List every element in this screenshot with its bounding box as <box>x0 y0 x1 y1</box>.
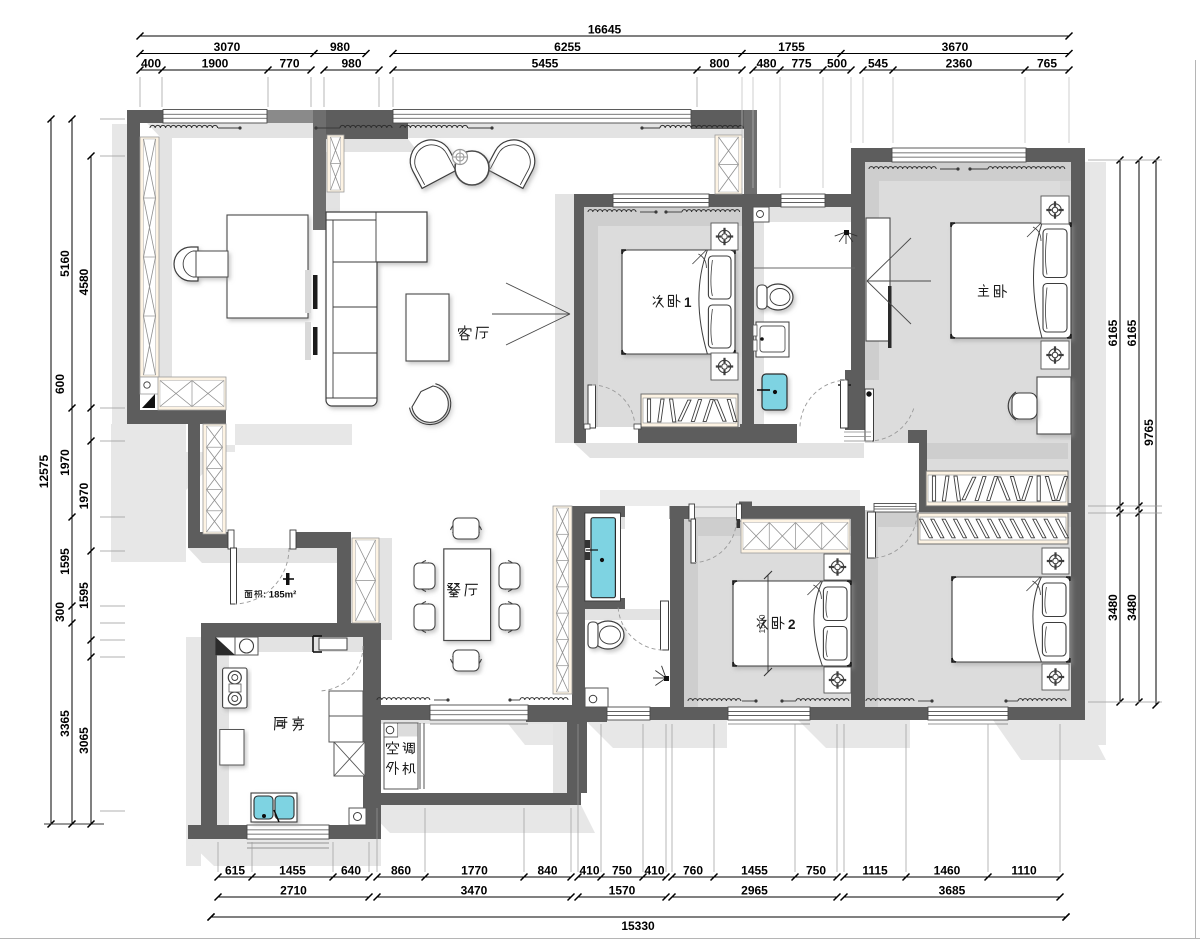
svg-text:1570: 1570 <box>609 884 636 898</box>
svg-text:480: 480 <box>756 57 776 71</box>
svg-text:3670: 3670 <box>942 40 969 54</box>
svg-text:12575: 12575 <box>37 454 51 488</box>
svg-text:545: 545 <box>868 57 888 71</box>
svg-text:1115: 1115 <box>862 864 888 878</box>
svg-text:3065: 3065 <box>77 727 91 754</box>
svg-text:1755: 1755 <box>778 40 805 54</box>
svg-text:980: 980 <box>341 57 361 71</box>
svg-text:770: 770 <box>279 57 299 71</box>
svg-text:2965: 2965 <box>741 884 768 898</box>
svg-text:1500: 1500 <box>757 614 767 633</box>
svg-text:9765: 9765 <box>1142 419 1156 446</box>
svg-text:3480: 3480 <box>1106 594 1120 621</box>
svg-text:775: 775 <box>791 57 811 71</box>
svg-text:760: 760 <box>683 864 703 878</box>
svg-text:6255: 6255 <box>554 40 581 54</box>
svg-text:1110: 1110 <box>1011 864 1037 878</box>
svg-text:15330: 15330 <box>621 919 655 933</box>
svg-text:3365: 3365 <box>58 710 72 737</box>
svg-text:640: 640 <box>341 864 361 878</box>
svg-text:3070: 3070 <box>214 40 241 54</box>
svg-text:3480: 3480 <box>1125 594 1139 621</box>
svg-text:860: 860 <box>391 864 411 878</box>
svg-text:3685: 3685 <box>939 884 966 898</box>
svg-text:3470: 3470 <box>461 884 488 898</box>
svg-text:750: 750 <box>806 864 826 878</box>
svg-text:1970: 1970 <box>58 449 72 476</box>
svg-text:2: 2 <box>788 617 796 632</box>
svg-text:1: 1 <box>684 295 692 310</box>
svg-text:1595: 1595 <box>58 548 72 575</box>
svg-text:1900: 1900 <box>202 57 229 71</box>
svg-text:765: 765 <box>1037 57 1057 71</box>
svg-text:6165: 6165 <box>1125 319 1139 346</box>
svg-text:410: 410 <box>644 864 664 878</box>
svg-text:800: 800 <box>709 57 729 71</box>
svg-text:500: 500 <box>827 57 847 71</box>
svg-text:4580: 4580 <box>77 268 91 295</box>
svg-text:5455: 5455 <box>532 57 559 71</box>
svg-text:16645: 16645 <box>588 23 622 37</box>
svg-text:2360: 2360 <box>946 57 973 71</box>
svg-text:1455: 1455 <box>279 864 306 878</box>
svg-text:1770: 1770 <box>461 864 488 878</box>
svg-text:300: 300 <box>53 602 67 622</box>
svg-text:1455: 1455 <box>741 864 768 878</box>
svg-text:6165: 6165 <box>1106 319 1120 346</box>
svg-text:410: 410 <box>579 864 599 878</box>
svg-text:1460: 1460 <box>934 864 961 878</box>
svg-text:600: 600 <box>53 374 67 394</box>
svg-text:1595: 1595 <box>77 582 91 609</box>
svg-text:840: 840 <box>537 864 557 878</box>
svg-text:5160: 5160 <box>58 250 72 277</box>
svg-text:400: 400 <box>141 57 161 71</box>
svg-text:615: 615 <box>225 864 245 878</box>
svg-text:2710: 2710 <box>280 884 307 898</box>
svg-text:980: 980 <box>330 40 350 54</box>
svg-text:1970: 1970 <box>77 482 91 509</box>
svg-text:750: 750 <box>612 864 632 878</box>
svg-text:: 185m²: : 185m² <box>263 590 296 601</box>
